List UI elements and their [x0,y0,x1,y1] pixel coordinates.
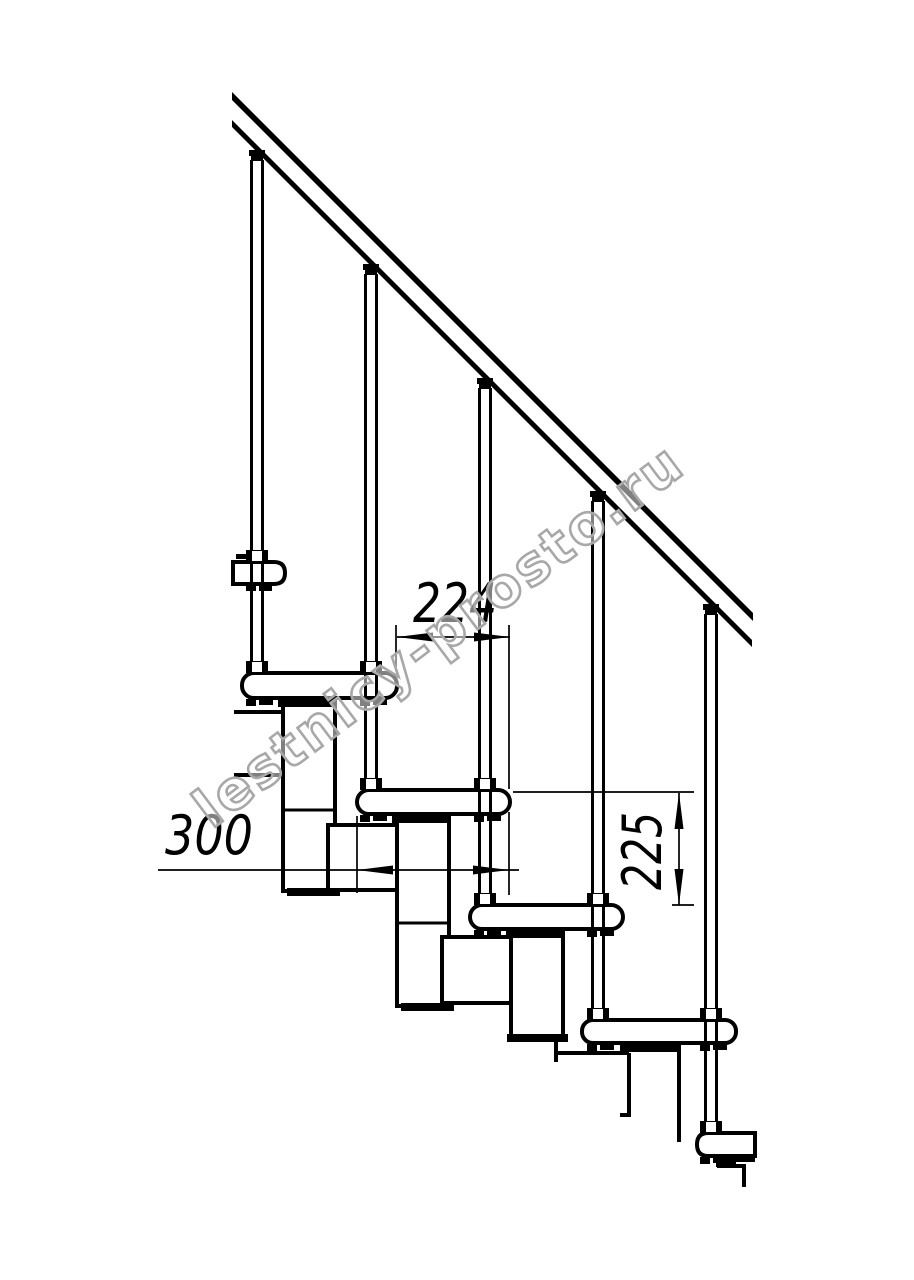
handrail-top-edge [232,92,753,621]
mount-bar [506,931,565,938]
mount-block [716,1158,736,1167]
pad [700,1157,710,1164]
rail-mount [705,610,717,615]
module-base-3 [507,1034,568,1042]
baluster-4 [587,491,609,1020]
mount-bar [620,1045,679,1052]
drawing-canvas: 224 300 225 lestnicy-prosto.ru [0,0,914,1280]
mount-bar [392,816,451,823]
rail-mount [251,156,263,161]
dimension-225-label: 225 [611,812,674,890]
pad [259,699,273,705]
rail-mount [477,378,493,384]
tread-5 [697,1133,755,1156]
module-column-3 [511,925,563,1037]
rail-mount [365,270,377,275]
tread-3 [470,905,623,929]
tread-4 [582,1020,736,1043]
pad [487,930,501,936]
baluster-1 [246,150,268,673]
arrow-down-icon [675,869,684,905]
tread-2 [357,790,510,814]
baluster-5 [700,604,722,1133]
module-clamp-3 [442,937,517,1003]
pad [600,1044,614,1050]
staircase-drawing: 224 300 225 lestnicy-prosto.ru [0,0,914,1280]
module-fragment-5 [717,1166,744,1187]
pad [360,815,370,822]
rail-mount [363,264,379,270]
module-clamp-2 [328,825,403,890]
arrow-up-icon [675,793,684,829]
pad [259,585,272,591]
tread-0 [233,562,285,584]
pad [474,930,484,937]
rail-mount [479,384,491,389]
pad [587,1044,597,1051]
watermark-text: lestnicy-prosto.ru [182,431,696,840]
pad [373,815,387,821]
rail-mount [703,604,719,610]
rail-mount [249,150,265,156]
module-clamp-4 [556,1041,629,1115]
pad [246,699,256,706]
